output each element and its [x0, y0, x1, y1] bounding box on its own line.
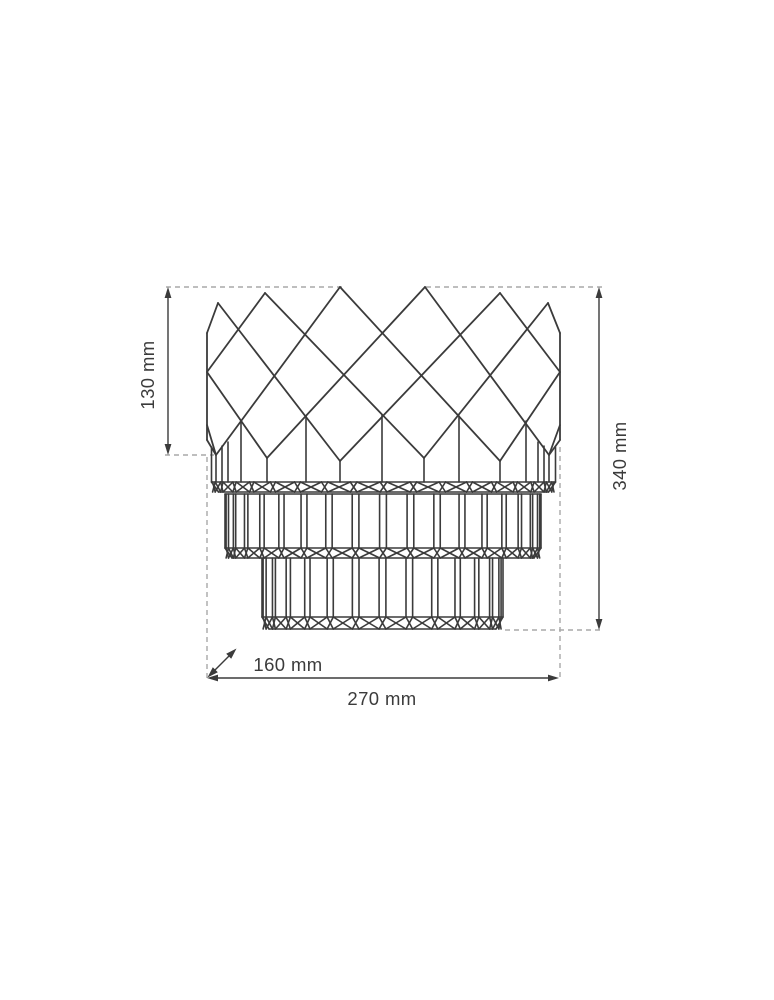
dimension-labels: 130 mm 340 mm 160 mm 270 mm [137, 340, 630, 709]
chandelier-drawing [207, 287, 560, 629]
arrowhead-340-up [596, 287, 603, 298]
dimension-label-width: 270 mm [347, 688, 416, 709]
dimension-label-depth: 160 mm [253, 654, 322, 675]
arrowhead-270-right [548, 675, 559, 682]
dimension-label-crown-height: 130 mm [137, 340, 158, 409]
arrowhead-130-up [165, 287, 172, 298]
arrowhead-130-down [165, 444, 172, 455]
arrowhead-340-down [596, 619, 603, 630]
dimension-drawing-svg: 130 mm 340 mm 160 mm 270 mm [0, 0, 774, 1000]
dim-line-160 [214, 655, 231, 672]
diagram-canvas: 130 mm 340 mm 160 mm 270 mm [0, 0, 774, 1000]
dimension-label-total-height: 340 mm [609, 421, 630, 490]
